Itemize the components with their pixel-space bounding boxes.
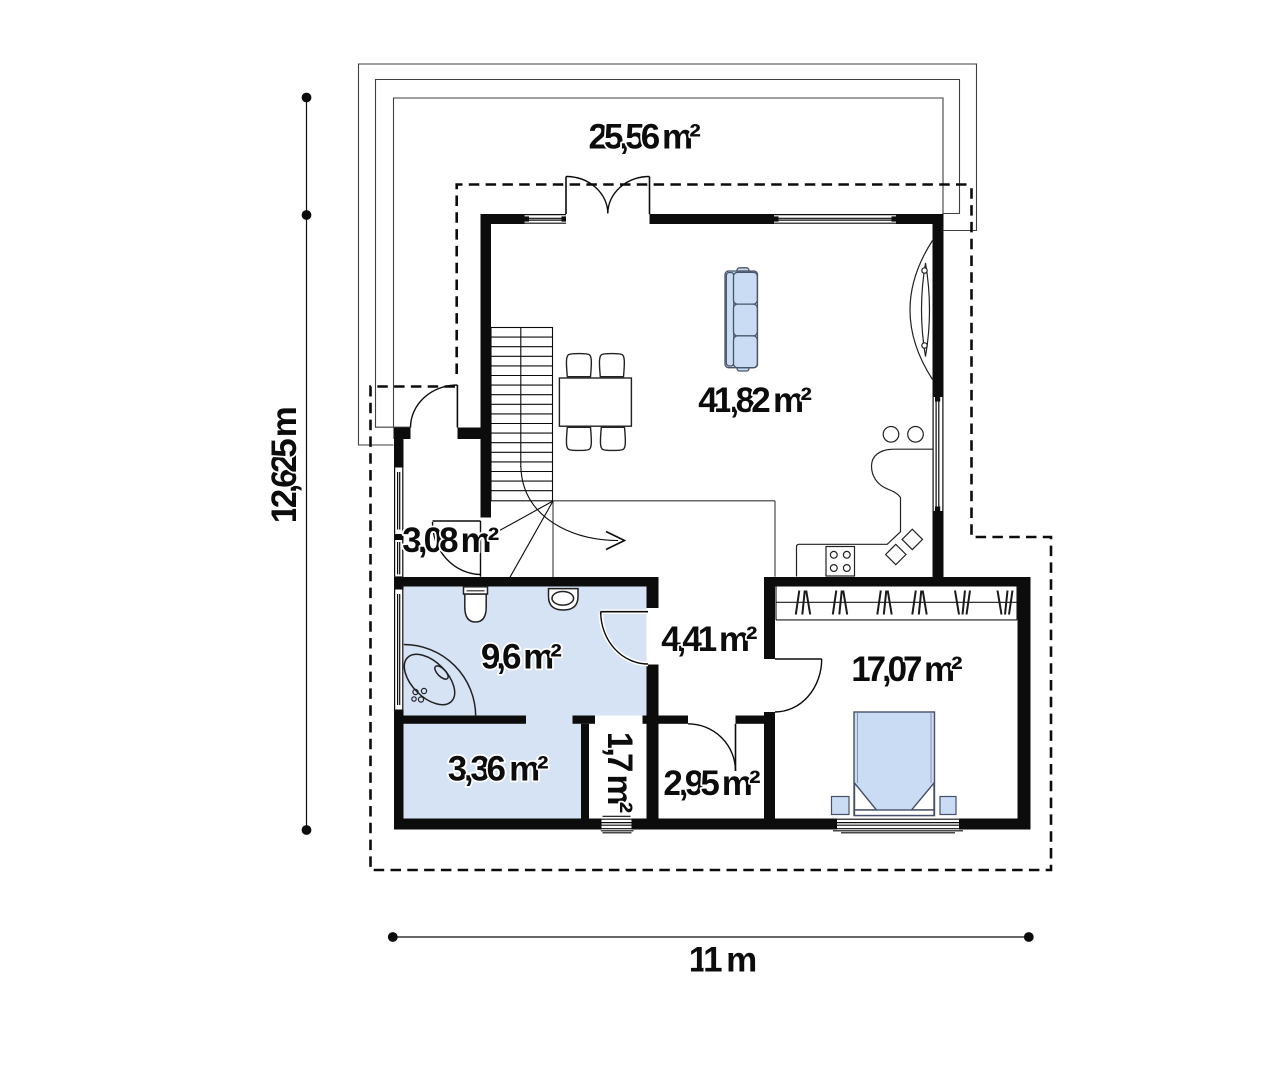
- svg-text:11 m: 11 m: [689, 940, 758, 979]
- svg-text:4,41 m²: 4,41 m²: [661, 620, 757, 659]
- svg-text:2,95 m²: 2,95 m²: [663, 764, 760, 803]
- svg-text:25,56 m²: 25,56 m²: [589, 118, 701, 157]
- svg-text:1,7 m²: 1,7 m²: [600, 732, 639, 814]
- svg-text:12,625 m: 12,625 m: [265, 406, 304, 523]
- svg-text:3,36 m²: 3,36 m²: [448, 750, 549, 789]
- svg-text:3,08 m²: 3,08 m²: [402, 521, 499, 560]
- svg-text:9,6 m²: 9,6 m²: [481, 637, 562, 676]
- svg-text:17,07 m²: 17,07 m²: [851, 650, 962, 689]
- svg-text:41,82 m²: 41,82 m²: [698, 381, 812, 420]
